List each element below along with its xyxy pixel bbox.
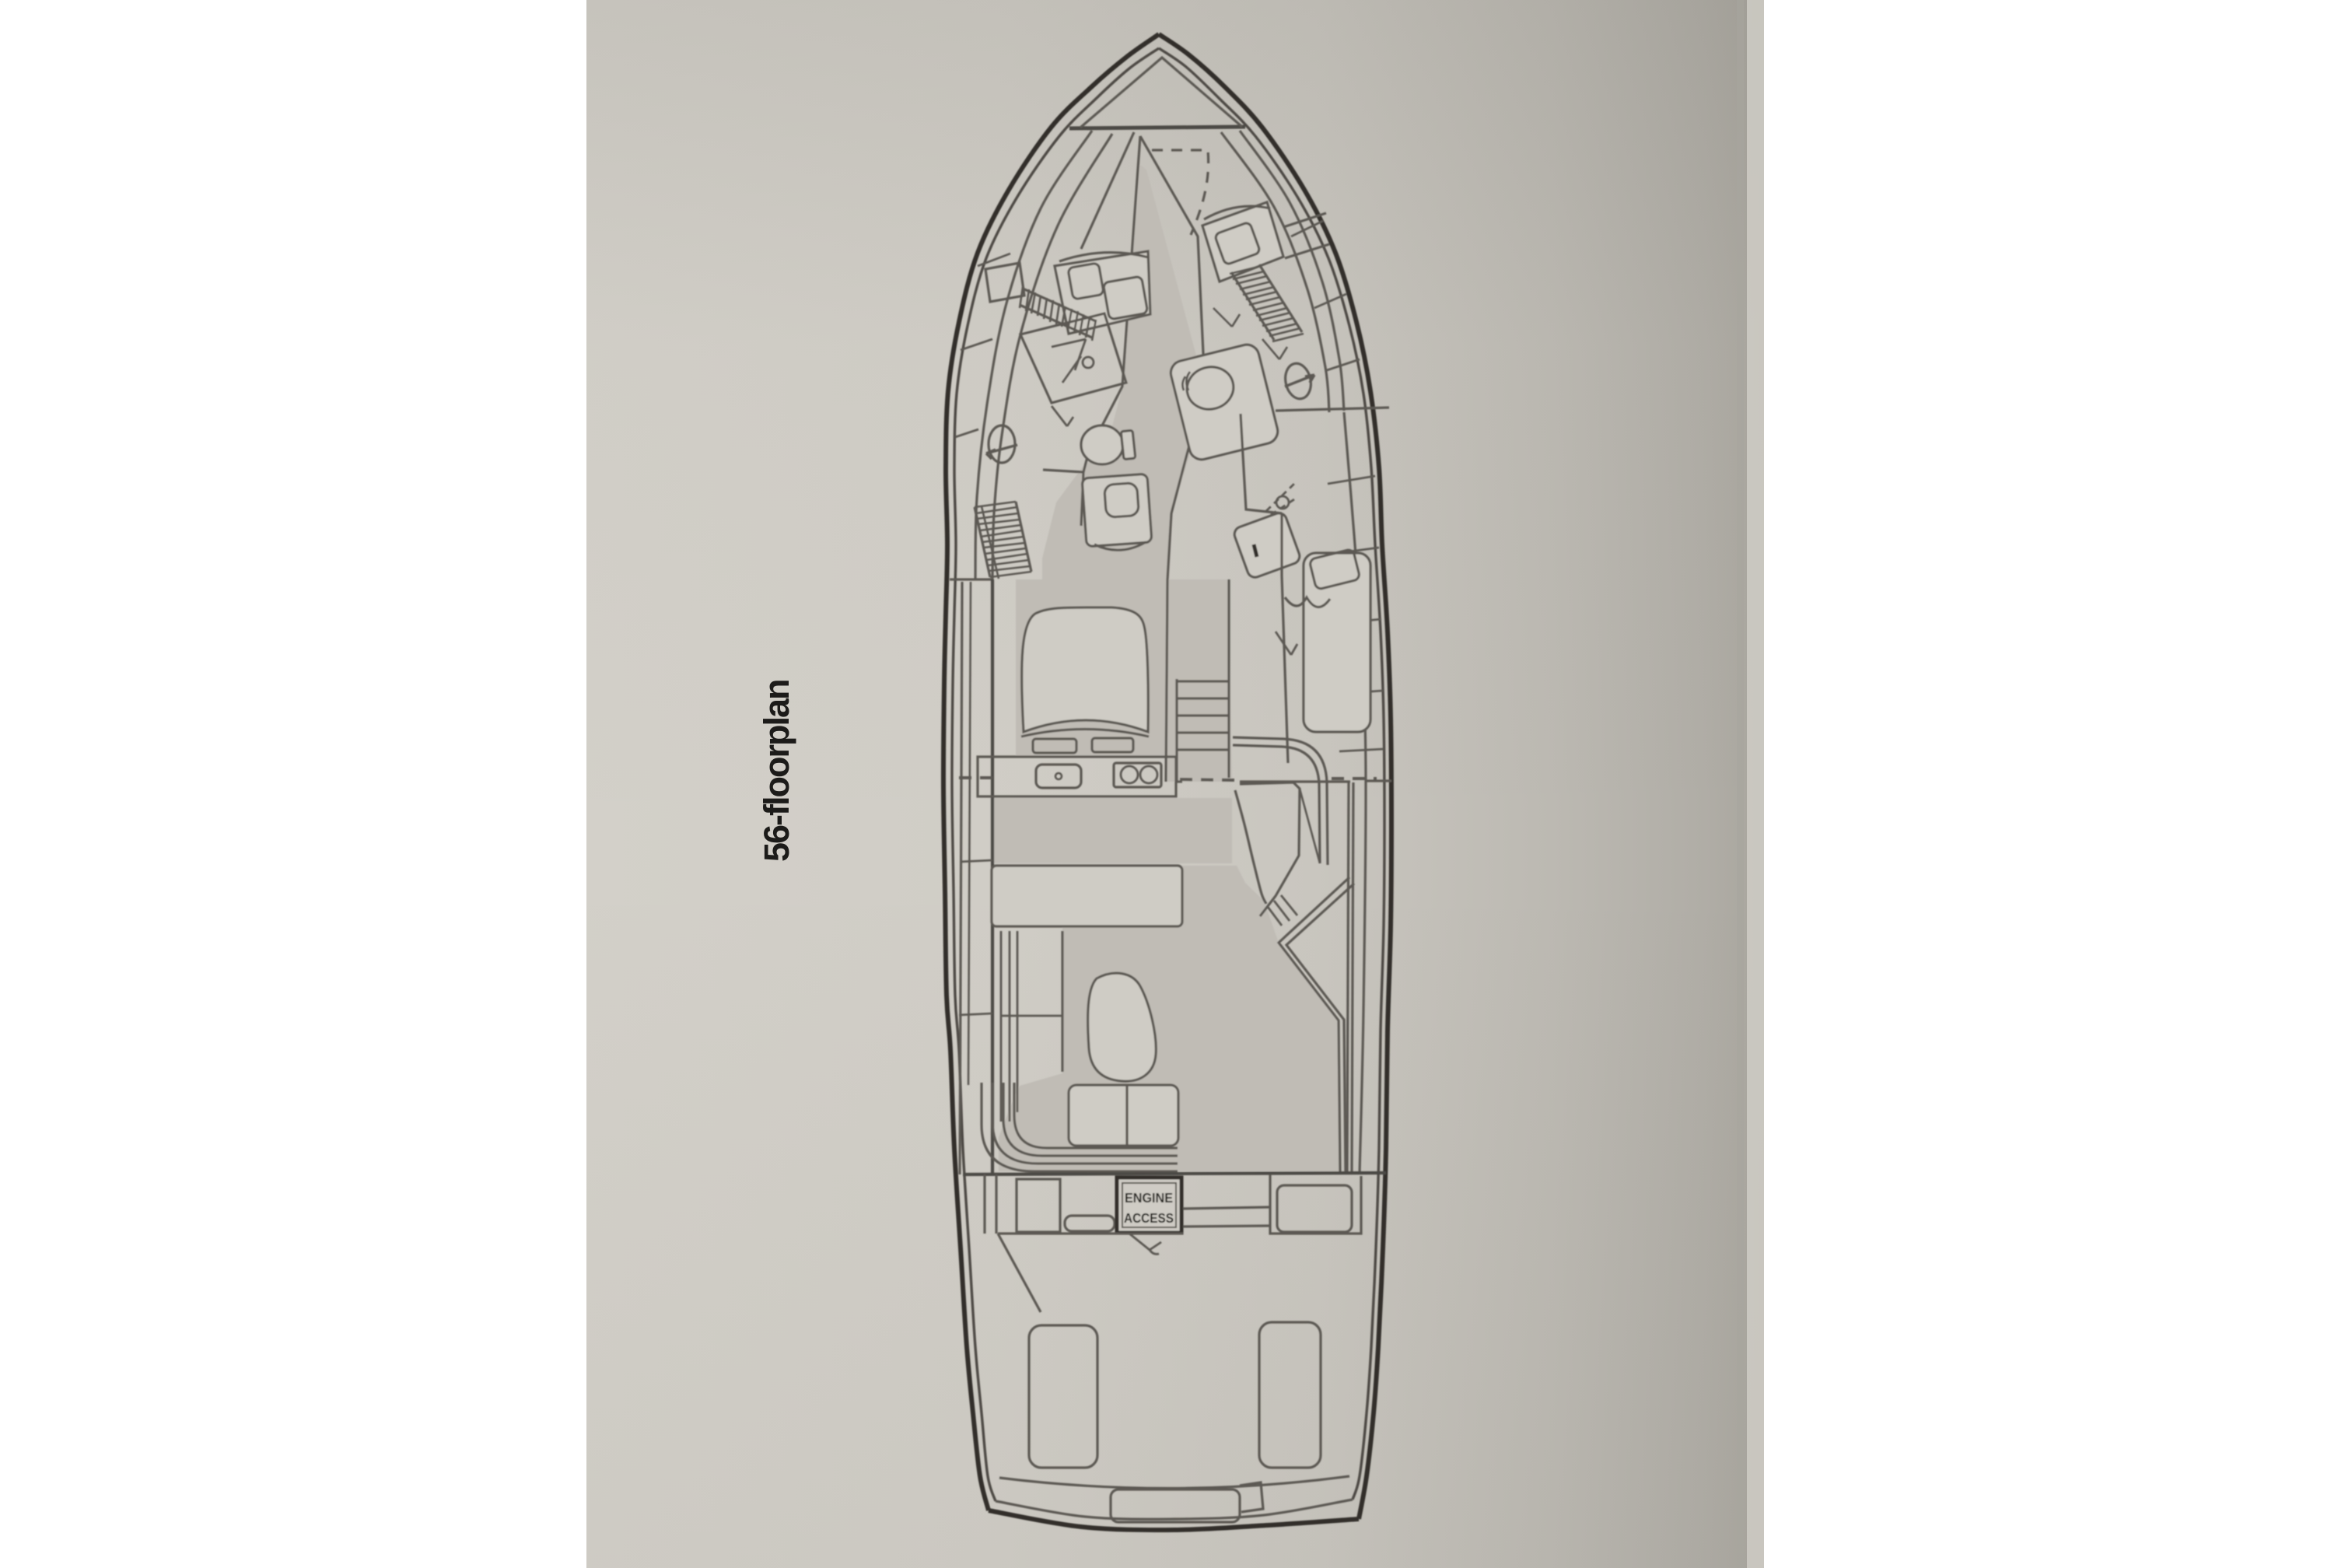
svg-text:56-floorplan: 56-floorplan bbox=[757, 680, 796, 862]
svg-text:ACCESS: ACCESS bbox=[1124, 1210, 1174, 1226]
svg-text:ENGINE: ENGINE bbox=[1125, 1190, 1173, 1206]
